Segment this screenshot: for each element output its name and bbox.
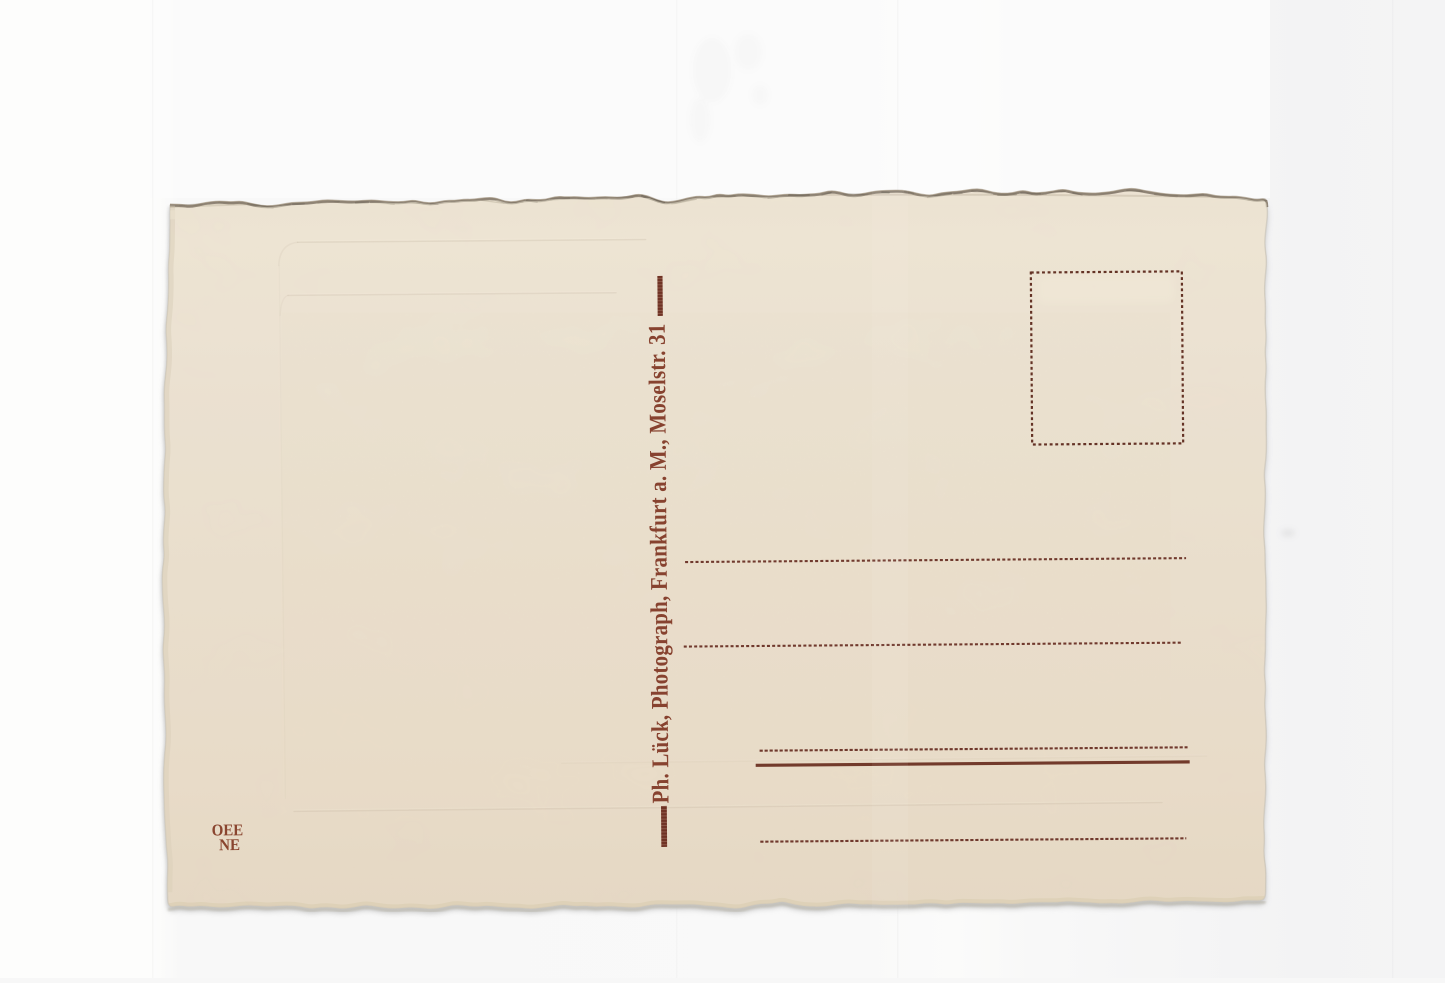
svg-text:Ph. Lück, Photograph, Frankfur: Ph. Lück, Photograph, Frankfurt a. M., M… <box>645 323 675 803</box>
svg-text:NE: NE <box>219 835 240 854</box>
